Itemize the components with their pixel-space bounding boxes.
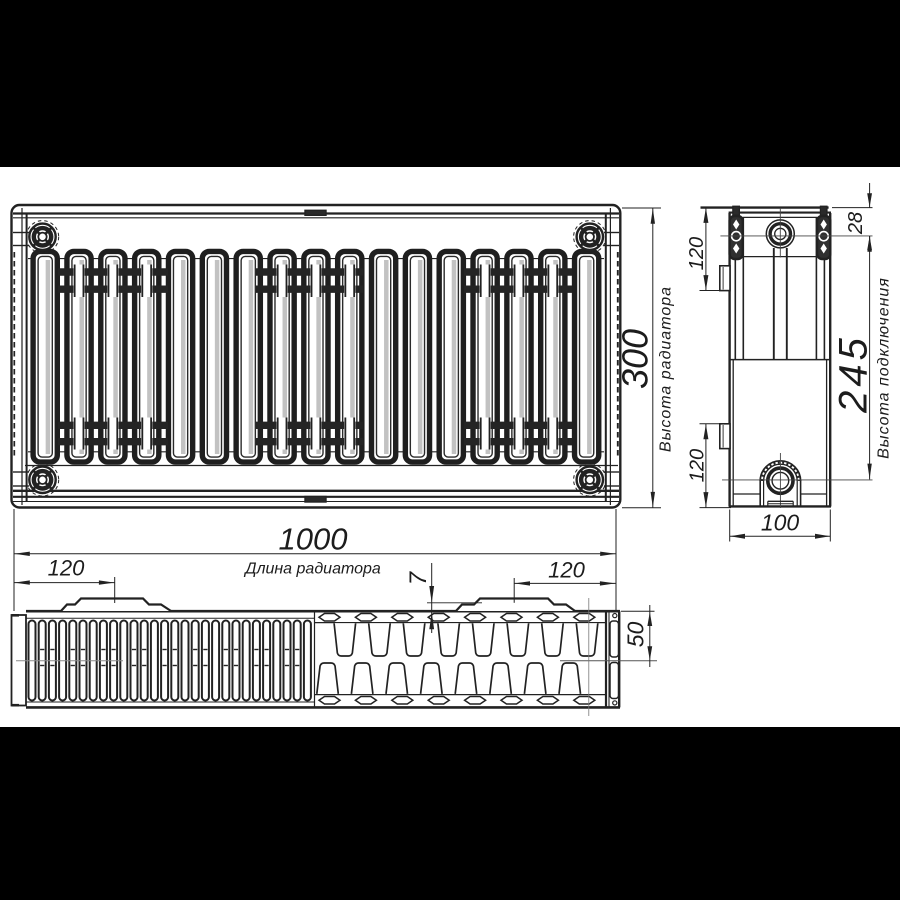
svg-text:28: 28 xyxy=(845,212,867,235)
svg-text:300: 300 xyxy=(615,329,656,389)
svg-text:7: 7 xyxy=(405,570,432,585)
svg-text:Высота подключения: Высота подключения xyxy=(876,277,893,459)
svg-text:120: 120 xyxy=(686,237,708,270)
svg-text:Высота радиатора: Высота радиатора xyxy=(658,286,675,452)
svg-text:100: 100 xyxy=(761,510,800,536)
svg-text:Длина радиатора: Длина радиатора xyxy=(243,561,381,578)
svg-text:50: 50 xyxy=(623,622,649,648)
svg-text:120: 120 xyxy=(686,449,708,482)
svg-text:120: 120 xyxy=(548,557,585,582)
svg-text:120: 120 xyxy=(48,555,85,580)
svg-text:245: 245 xyxy=(832,334,876,414)
svg-text:1000: 1000 xyxy=(279,522,348,557)
